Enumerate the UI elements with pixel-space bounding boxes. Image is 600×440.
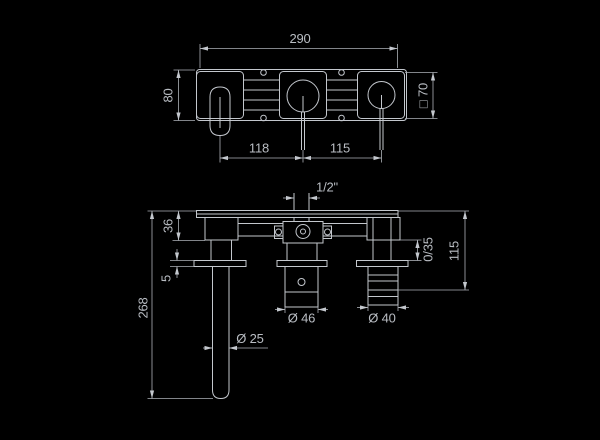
dim-thread-label: 1/2" [316, 180, 338, 195]
dim-d25-label: Ø 25 [236, 331, 263, 346]
dim-80-label: 80 [161, 88, 176, 102]
dim-36-label: 36 [161, 219, 176, 233]
technical-drawing-canvas: 290 80 □ 70 [0, 0, 600, 440]
dim-115-side-label: 115 [447, 241, 462, 261]
dim-268-label: 268 [136, 297, 151, 318]
dim-d46-label: Ø 46 [288, 311, 315, 326]
dim-035-label: 0/35 [421, 237, 436, 262]
dim-118-label: 118 [249, 141, 269, 156]
dim-290-label: 290 [289, 31, 310, 46]
drawing-background [0, 0, 600, 440]
dim-square70-label: □ 70 [416, 83, 431, 108]
dim-d40-label: Ø 40 [368, 311, 395, 326]
dim-115-top-label: 115 [330, 141, 350, 156]
dim-5-label: 5 [159, 275, 174, 282]
